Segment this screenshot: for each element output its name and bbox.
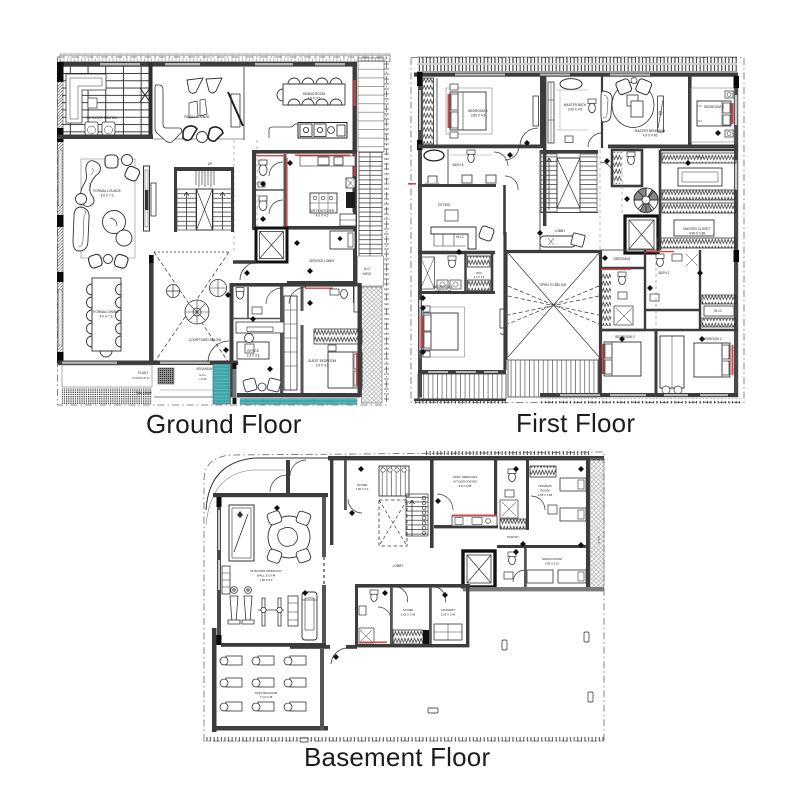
svg-text:BEDROOM 2: BEDROOM 2 xyxy=(702,337,721,341)
svg-text:FORMAL LOUNGE: FORMAL LOUNGE xyxy=(93,189,121,193)
svg-text:MASTER CLOSET: MASTER CLOSET xyxy=(684,227,711,231)
svg-text:BEDROOM 5: BEDROOM 5 xyxy=(433,285,452,289)
svg-text:PANTRY: PANTRY xyxy=(507,535,519,539)
svg-text:W.I.C: W.I.C xyxy=(456,235,464,239)
svg-text:OFFICE: OFFICE xyxy=(247,349,259,353)
svg-text:SCREENING: SCREENING xyxy=(132,376,151,380)
svg-text:7.4 X 4.45: 7.4 X 4.45 xyxy=(260,695,273,699)
svg-text:4.9 X 3.6: 4.9 X 3.6 xyxy=(308,97,321,101)
svg-text:B.O.: B.O. xyxy=(364,267,371,271)
svg-text:STORE: STORE xyxy=(403,608,413,612)
svg-text:UP: UP xyxy=(208,162,212,166)
svg-text:LAUNDRY: LAUNDRY xyxy=(441,608,455,612)
svg-text:4.0 X 7.3: 4.0 X 7.3 xyxy=(100,315,113,319)
svg-text:3.65 X 4.45: 3.65 X 4.45 xyxy=(435,290,452,294)
svg-text:VERANDAH: VERANDAH xyxy=(196,367,214,371)
svg-text:W.I.C: W.I.C xyxy=(696,155,704,159)
svg-text:DINING ROOM: DINING ROOM xyxy=(303,92,325,96)
svg-text:MASTER BEDROOM: MASTER BEDROOM xyxy=(635,129,666,133)
svg-text:KITCHEN ROOM: KITCHEN ROOM xyxy=(453,480,477,484)
svg-text:BEDROOM 3: BEDROOM 3 xyxy=(615,335,634,339)
svg-text:ASST. SERVICES: ASST. SERVICES xyxy=(453,475,477,479)
svg-text:3.65 X 3.10: 3.65 X 3.10 xyxy=(545,562,560,566)
svg-text:7.85 X 8.0: 7.85 X 8.0 xyxy=(260,578,273,582)
svg-text:FORMAL DINING: FORMAL DINING xyxy=(93,310,119,314)
svg-text:DRESSING: DRESSING xyxy=(614,257,631,261)
svg-text:DRIVERS: DRIVERS xyxy=(538,484,551,488)
svg-text:MAIDS ROOM: MAIDS ROOM xyxy=(542,557,562,561)
svg-text:3.65 X 4.9: 3.65 X 4.9 xyxy=(471,114,486,118)
svg-text:OUTDOOR WORKOUT: OUTDOOR WORKOUT xyxy=(250,569,282,573)
svg-text:OPEN TO BELOW: OPEN TO BELOW xyxy=(540,283,567,287)
svg-text:3.95 X 3.85: 3.95 X 3.85 xyxy=(538,493,553,497)
svg-text:4.0 X 4.3: 4.0 X 4.3 xyxy=(316,214,329,218)
svg-text:6.0 X 7.3: 6.0 X 7.3 xyxy=(101,194,114,198)
svg-text:MASTER BATH: MASTER BATH xyxy=(564,103,587,107)
svg-text:BEDROOM 4: BEDROOM 4 xyxy=(468,109,487,113)
svg-text:FAMILY LOUNGE: FAMILY LOUNGE xyxy=(184,115,209,119)
svg-text:WALKWAY: WALKWAY xyxy=(136,391,153,395)
svg-text:GUEST BEDROOM: GUEST BEDROOM xyxy=(308,359,337,363)
svg-text:BEDROOM 2: BEDROOM 2 xyxy=(704,105,723,109)
svg-text:3.3 X 3.6: 3.3 X 3.6 xyxy=(247,354,260,358)
svg-text:OUTDOOR SEATING: OUTDOOR SEATING xyxy=(87,116,118,120)
svg-text:2.2 X 1.9: 2.2 X 1.9 xyxy=(474,275,485,279)
svg-text:BATH 4: BATH 4 xyxy=(453,163,464,167)
svg-text:W.I.C: W.I.C xyxy=(714,309,722,313)
svg-text:3.6 X 4.3: 3.6 X 4.3 xyxy=(316,364,329,368)
svg-text:WIC: WIC xyxy=(476,271,483,275)
svg-text:SERVICE LOBBY: SERVICE LOBBY xyxy=(309,259,335,263)
svg-text:3.05 X 4.9: 3.05 X 4.9 xyxy=(568,108,583,112)
svg-text:ROOM: ROOM xyxy=(540,489,550,493)
svg-text:SITTING: SITTING xyxy=(438,203,451,207)
svg-text:1.65 X 2.2: 1.65 X 2.2 xyxy=(356,487,369,491)
svg-text:4.95 X 2.85: 4.95 X 2.85 xyxy=(689,232,706,236)
svg-text:DIRTY KITCHEN: DIRTY KITCHEN xyxy=(310,209,335,213)
svg-text:LOBBY: LOBBY xyxy=(555,229,567,233)
svg-text:COURTYARD BELOW: COURTYARD BELOW xyxy=(189,338,221,342)
svg-text:+0.45: +0.45 xyxy=(199,377,207,381)
svg-text:3.9 X 3.85: 3.9 X 3.85 xyxy=(459,484,472,488)
svg-text:LOBBY: LOBBY xyxy=(393,564,405,568)
svg-text:WALL & GYM: WALL & GYM xyxy=(257,574,276,578)
svg-text:BATH 2: BATH 2 xyxy=(659,271,670,275)
svg-text:LVL E: LVL E xyxy=(597,536,601,544)
svg-text:4.9 X 4.45: 4.9 X 4.45 xyxy=(643,134,658,138)
svg-text:1.65 X 2.45: 1.65 X 2.45 xyxy=(401,613,416,617)
svg-text:PLANT: PLANT xyxy=(138,371,148,375)
svg-text:YARD: YARD xyxy=(362,272,372,276)
svg-text:1.65 X 2.45: 1.65 X 2.45 xyxy=(441,613,456,617)
